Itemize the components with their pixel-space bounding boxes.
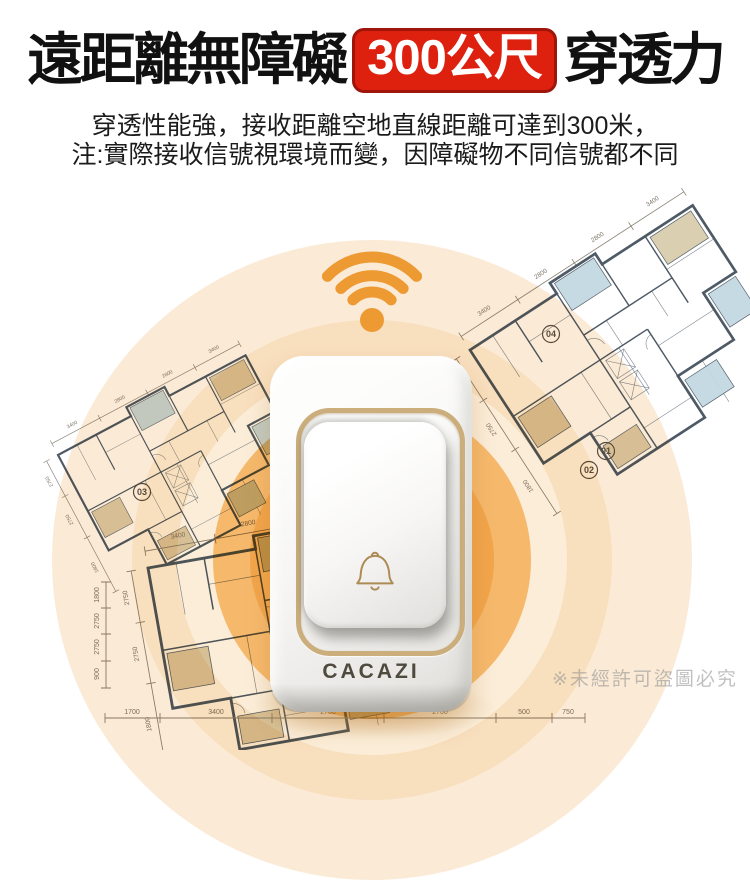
svg-text:01: 01 (601, 446, 611, 456)
svg-text:750: 750 (562, 709, 574, 716)
watermark-text: ※未經許可盜圖必究 (552, 664, 738, 691)
subtitle-line-2: 注:實際接收信號視環境而變，因障礙物不同信號都不同 (0, 141, 750, 170)
headline: 遠距離無障礙 300公尺 穿透力 (0, 28, 750, 93)
unit-number-04: 04 (543, 326, 560, 343)
svg-text:03: 03 (137, 487, 147, 497)
subtitle-line-1: 穿透性能強，接收距離空地直線距離可達到300米， (0, 112, 750, 141)
unit-number-02: 02 (581, 462, 598, 479)
doorbell-bell-icon (348, 546, 402, 600)
brand-label: CACAZI (270, 660, 472, 684)
doorbell-device: CACAZI (270, 356, 472, 712)
distance-badge: 300公尺 (352, 28, 557, 93)
wifi-signal-icon (322, 244, 422, 336)
doorbell-push-button[interactable] (304, 422, 446, 628)
headline-left: 遠距離無障礙 (27, 31, 345, 90)
left-dimension-chain: 1800 2750 2750 900 (94, 582, 111, 688)
svg-text:900: 900 (94, 668, 101, 680)
svg-text:2750: 2750 (94, 639, 101, 655)
headline-right: 穿透力 (564, 31, 723, 90)
svg-text:1700: 1700 (124, 709, 140, 716)
svg-text:1800: 1800 (94, 587, 101, 603)
svg-text:02: 02 (584, 465, 594, 475)
svg-text:04: 04 (546, 329, 556, 339)
svg-text:3400: 3400 (208, 709, 224, 716)
svg-text:2750: 2750 (94, 613, 101, 629)
svg-text:500: 500 (518, 709, 530, 716)
subtitle: 穿透性能強，接收距離空地直線距離可達到300米， 注:實際接收信號視環境而變，因… (0, 112, 750, 170)
unit-number-03: 03 (134, 484, 151, 501)
